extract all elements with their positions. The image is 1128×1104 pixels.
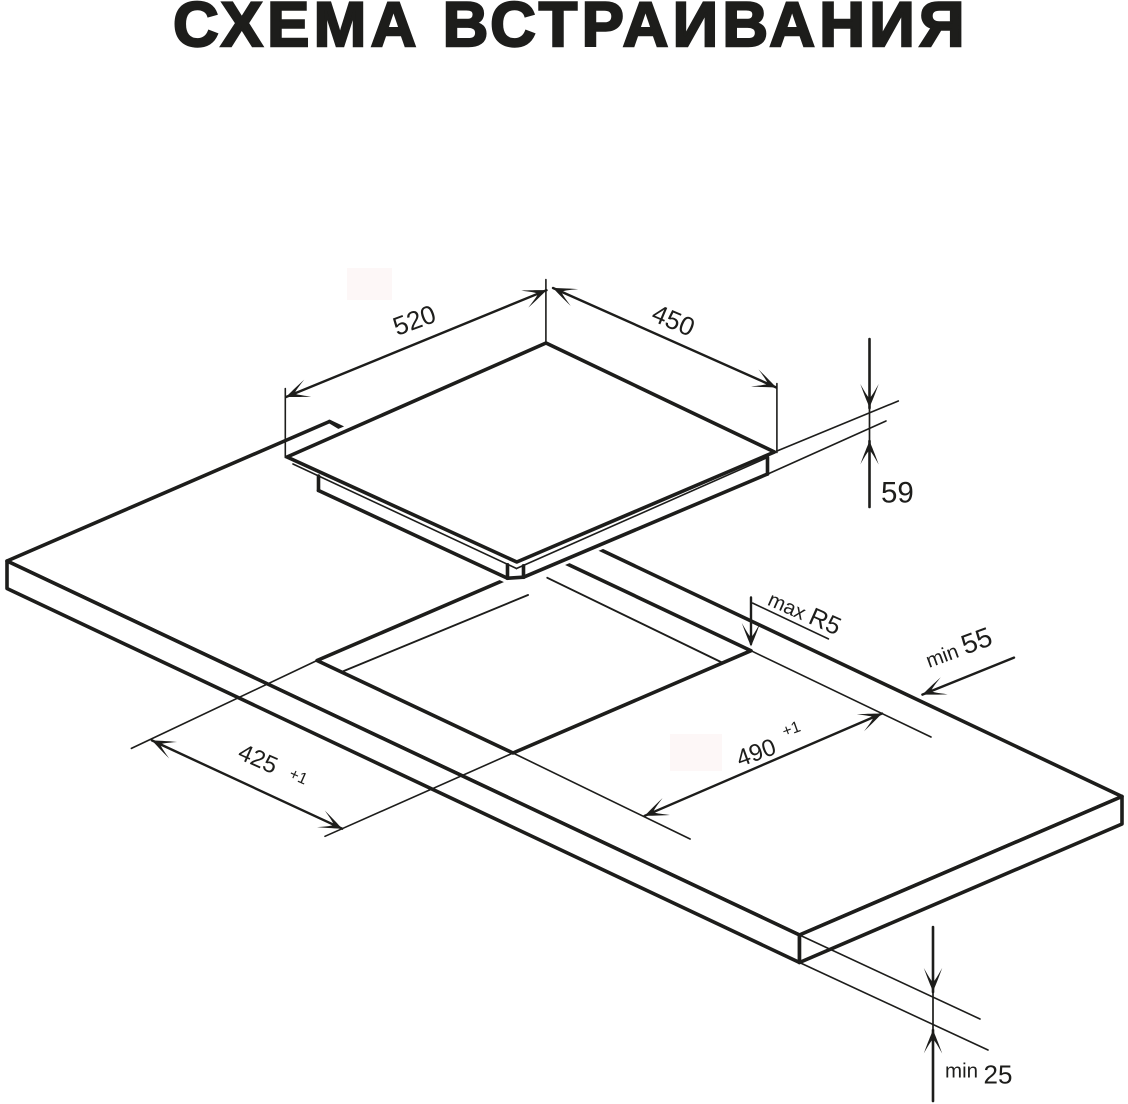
svg-text:25: 25 <box>984 1060 1013 1090</box>
svg-text:min 55: min 55 <box>920 621 996 674</box>
svg-text:450: 450 <box>648 298 700 343</box>
svg-text:min: min <box>945 1060 978 1083</box>
svg-text:59: 59 <box>881 477 914 510</box>
svg-text:520: 520 <box>389 299 440 342</box>
svg-text:+1: +1 <box>286 766 310 789</box>
svg-text:425: 425 <box>234 739 282 780</box>
